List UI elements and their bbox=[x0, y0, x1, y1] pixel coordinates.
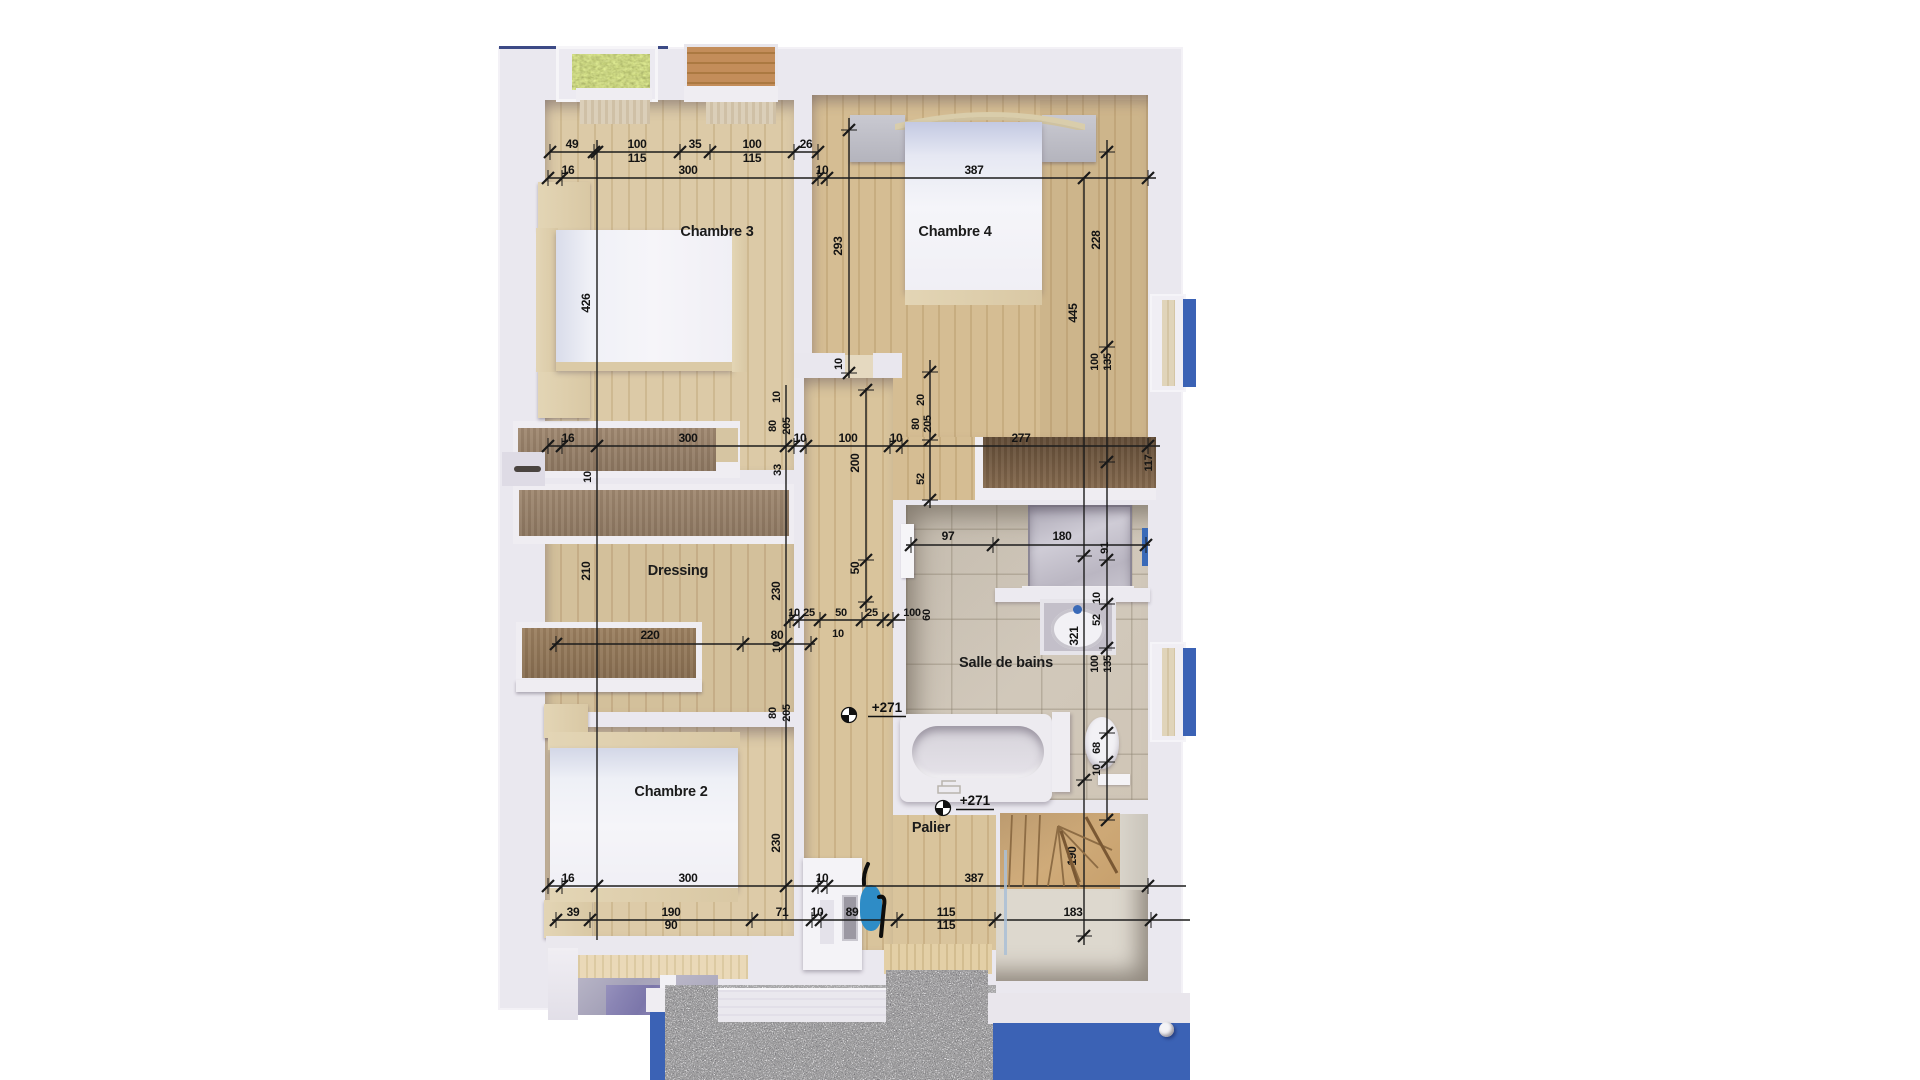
svg-text:228: 228 bbox=[1089, 230, 1103, 250]
svg-text:426: 426 bbox=[579, 293, 593, 313]
svg-text:10: 10 bbox=[788, 607, 800, 619]
svg-text:10: 10 bbox=[771, 641, 783, 653]
svg-text:16: 16 bbox=[562, 163, 575, 177]
svg-text:10: 10 bbox=[1091, 764, 1103, 776]
svg-text:387: 387 bbox=[964, 871, 984, 885]
svg-text:50: 50 bbox=[848, 561, 862, 574]
svg-text:33: 33 bbox=[772, 464, 784, 476]
svg-text:10: 10 bbox=[832, 628, 844, 640]
svg-text:16: 16 bbox=[562, 431, 575, 445]
svg-text:80: 80 bbox=[771, 628, 784, 642]
svg-text:117: 117 bbox=[1143, 454, 1155, 471]
svg-text:+271: +271 bbox=[960, 793, 991, 808]
svg-text:16: 16 bbox=[562, 871, 575, 885]
svg-text:10: 10 bbox=[890, 431, 903, 445]
svg-text:135: 135 bbox=[1102, 655, 1114, 673]
svg-text:Salle de bains: Salle de bains bbox=[959, 655, 1053, 671]
svg-text:10: 10 bbox=[833, 358, 845, 370]
svg-text:Palier: Palier bbox=[912, 820, 951, 836]
svg-text:25: 25 bbox=[803, 607, 815, 619]
svg-text:97: 97 bbox=[942, 529, 955, 543]
svg-text:35: 35 bbox=[689, 137, 702, 151]
svg-text:Chambre 2: Chambre 2 bbox=[634, 784, 707, 800]
svg-text:60: 60 bbox=[921, 609, 933, 621]
svg-text:68: 68 bbox=[1091, 742, 1103, 754]
svg-text:Chambre 4: Chambre 4 bbox=[918, 224, 991, 240]
svg-text:80: 80 bbox=[910, 418, 922, 430]
svg-text:52: 52 bbox=[915, 473, 927, 485]
svg-text:210: 210 bbox=[579, 561, 593, 581]
svg-text:387: 387 bbox=[964, 163, 984, 177]
svg-text:100: 100 bbox=[742, 137, 762, 151]
svg-text:80: 80 bbox=[767, 707, 779, 719]
svg-text:25: 25 bbox=[866, 607, 878, 619]
svg-text:115: 115 bbox=[743, 151, 762, 165]
svg-text:100: 100 bbox=[838, 431, 858, 445]
svg-text:115: 115 bbox=[937, 905, 956, 919]
svg-text:277: 277 bbox=[1011, 431, 1031, 445]
svg-text:205: 205 bbox=[922, 415, 934, 433]
svg-text:230: 230 bbox=[769, 581, 783, 601]
svg-text:100: 100 bbox=[1089, 655, 1101, 673]
svg-text:190: 190 bbox=[661, 905, 681, 919]
svg-text:200: 200 bbox=[848, 453, 862, 473]
svg-text:115: 115 bbox=[937, 918, 956, 932]
svg-text:10: 10 bbox=[816, 163, 829, 177]
svg-text:+271: +271 bbox=[872, 700, 903, 715]
svg-text:10: 10 bbox=[771, 391, 783, 403]
svg-text:445: 445 bbox=[1066, 303, 1080, 323]
svg-text:115: 115 bbox=[628, 151, 647, 165]
svg-text:10: 10 bbox=[816, 871, 829, 885]
svg-text:39: 39 bbox=[567, 905, 580, 919]
svg-text:321: 321 bbox=[1067, 626, 1081, 646]
svg-text:Chambre 3: Chambre 3 bbox=[680, 224, 753, 240]
svg-text:205: 205 bbox=[781, 704, 793, 722]
svg-text:10: 10 bbox=[1091, 592, 1103, 604]
svg-text:90: 90 bbox=[665, 918, 678, 932]
svg-text:10: 10 bbox=[582, 471, 594, 483]
svg-text:71: 71 bbox=[776, 905, 789, 919]
svg-text:50: 50 bbox=[835, 607, 847, 619]
svg-text:100: 100 bbox=[627, 137, 647, 151]
svg-text:20: 20 bbox=[915, 394, 927, 406]
svg-text:10: 10 bbox=[811, 905, 824, 919]
svg-text:300: 300 bbox=[678, 871, 698, 885]
svg-text:135: 135 bbox=[1102, 353, 1114, 371]
svg-text:205: 205 bbox=[781, 417, 793, 435]
svg-text:180: 180 bbox=[1052, 529, 1072, 543]
svg-text:183: 183 bbox=[1063, 905, 1083, 919]
svg-text:220: 220 bbox=[640, 628, 660, 642]
svg-text:300: 300 bbox=[678, 431, 698, 445]
svg-text:49: 49 bbox=[566, 137, 579, 151]
svg-text:Dressing: Dressing bbox=[648, 563, 708, 579]
svg-text:89: 89 bbox=[846, 905, 859, 919]
svg-text:10: 10 bbox=[794, 431, 807, 445]
svg-text:100: 100 bbox=[1089, 353, 1101, 371]
svg-text:300: 300 bbox=[678, 163, 698, 177]
svg-text:52: 52 bbox=[1091, 614, 1103, 626]
svg-text:100: 100 bbox=[903, 607, 921, 619]
svg-text:26: 26 bbox=[800, 137, 813, 151]
svg-text:293: 293 bbox=[831, 236, 845, 256]
svg-text:80: 80 bbox=[767, 420, 779, 432]
svg-text:91: 91 bbox=[1099, 542, 1111, 554]
svg-text:230: 230 bbox=[769, 833, 783, 853]
